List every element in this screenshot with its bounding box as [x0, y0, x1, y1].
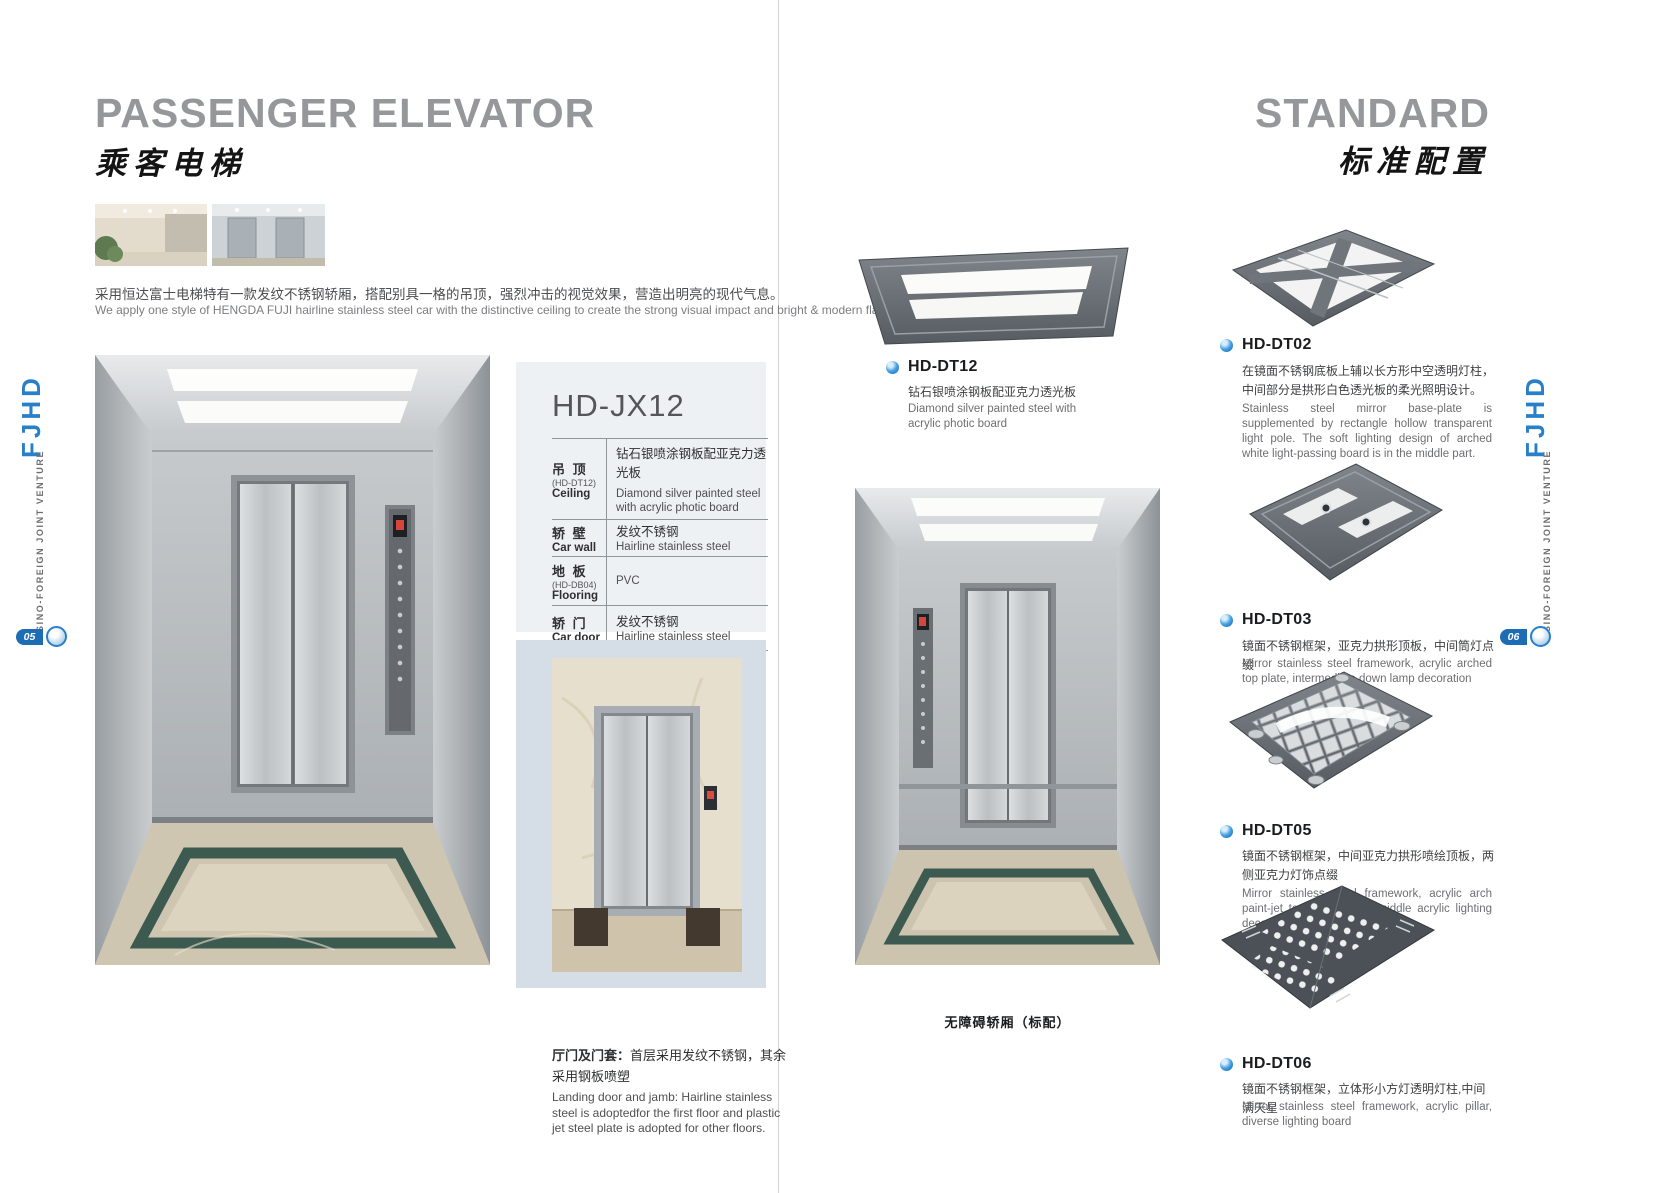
- lobby-photo-1: [95, 204, 207, 266]
- blue-bullet-icon: [1220, 1058, 1233, 1071]
- spec-row-flooring: 地 板 (HD-DB04) Flooring PVC: [552, 557, 768, 606]
- page-title-cn-left: 乘客电梯: [95, 138, 247, 183]
- brand-vertical-left: FJHD: [18, 374, 44, 458]
- item-header: HD-DT06: [1220, 1055, 1312, 1073]
- intro-text-en: We apply one style of HENGDA FUJI hairli…: [95, 303, 898, 317]
- featured-desc-en: Diamond silver painted steel with acryli…: [908, 402, 1093, 432]
- spec-label-cn: 轿 门: [552, 613, 602, 632]
- intro-text-cn: 采用恒达富士电梯特有一款发纹不锈钢轿厢，搭配别具一格的吊顶，强烈冲击的视觉效果，…: [95, 283, 784, 303]
- page-title-cn-right: 标准配置: [1080, 136, 1490, 181]
- page-divider: [778, 0, 779, 1193]
- item-code: HD-DT02: [1242, 336, 1312, 354]
- spec-value-cn: 发纹不锈钢: [616, 611, 768, 630]
- spec-table: 吊 顶 (HD-DT12) Ceiling 钻石银喷涂钢板配亚克力透光板 Dia…: [552, 438, 768, 651]
- item-code: HD-DT03: [1242, 611, 1312, 629]
- page-badge-left: 05: [16, 626, 67, 647]
- landing-note-cn: 厅门及门套：首层采用发纹不锈钢，其余采用钢板喷塑: [552, 1045, 792, 1088]
- item-code: HD-DT05: [1242, 822, 1312, 840]
- lobby-photo-2: [212, 204, 325, 266]
- featured-item-header: HD-DT12: [886, 358, 978, 376]
- spec-label-en: Car wall: [552, 542, 602, 554]
- landing-note-title: 厅门及门套：: [552, 1048, 630, 1063]
- spec-value-en: PVC: [616, 574, 768, 588]
- ceiling-hd-dt06-image: [1212, 868, 1450, 1046]
- page-title-left: PASSENGER ELEVATOR: [95, 90, 595, 137]
- spec-label-en: Flooring: [552, 590, 602, 602]
- item-code: HD-DT06: [1242, 1055, 1312, 1073]
- blue-bullet-icon: [1220, 339, 1233, 352]
- page-title-right: STANDARD: [1080, 90, 1490, 137]
- globe-emblem-icon: [46, 626, 67, 647]
- tagline-vertical-left: SINO-FOREIGN JOINT VENTURE: [36, 450, 45, 632]
- ceiling-hd-dt12-image: [845, 240, 1140, 352]
- blue-bullet-icon: [1220, 614, 1233, 627]
- spec-value-cn: 钻石银喷涂钢板配亚克力透光板: [616, 443, 768, 481]
- landing-note-en: Landing door and jamb: Hairline stainles…: [552, 1090, 795, 1137]
- item-desc-en: Mirror stainless steel framework, acryli…: [1242, 1100, 1492, 1130]
- spec-value-en: Hairline stainless steel: [616, 540, 768, 554]
- page-number-right: 06: [1500, 629, 1527, 645]
- brand-vertical-right: FJHD: [1522, 374, 1548, 458]
- elevator-car-photo: [95, 355, 490, 965]
- item-desc-cn: 在镜面不锈钢底板上辅以长方形中空透明灯柱，中间部分是拱形白色透光板的柔光照明设计…: [1242, 362, 1494, 399]
- spec-label-code: (HD-DT12): [552, 478, 602, 488]
- page-number-left: 05: [16, 629, 43, 645]
- catalog-spread: FJHD SINO-FOREIGN JOINT VENTURE 05 FJHD …: [0, 0, 1678, 1193]
- tagline-vertical-right: SINO-FOREIGN JOINT VENTURE: [1543, 450, 1552, 632]
- featured-item-code: HD-DT12: [908, 358, 978, 376]
- spec-value-en: Diamond silver painted steel with acryli…: [616, 487, 768, 516]
- item-header: HD-DT03: [1220, 611, 1312, 629]
- featured-desc-cn: 钻石银喷涂钢板配亚克力透光板: [908, 383, 1128, 402]
- blue-bullet-icon: [1220, 825, 1233, 838]
- spec-value-cn: 发纹不锈钢: [616, 521, 768, 540]
- item-header: HD-DT02: [1220, 336, 1312, 354]
- model-name: HD-JX12: [552, 388, 685, 424]
- landing-door-photo: [552, 658, 742, 972]
- ceiling-hd-dt05-image: [1216, 652, 1448, 820]
- ceiling-hd-dt02-image: [1218, 222, 1446, 334]
- spec-row-car-wall: 轿 壁 Car wall 发纹不锈钢 Hairline stainless st…: [552, 520, 768, 557]
- accessible-car-photo: [855, 488, 1160, 965]
- spec-label-code: (HD-DB04): [552, 580, 602, 590]
- item-header: HD-DT05: [1220, 822, 1312, 840]
- spec-label-cn: 地 板: [552, 561, 602, 580]
- spec-label-en: Ceiling: [552, 488, 602, 500]
- accessible-car-caption: 无障碍轿厢（标配）: [855, 1012, 1160, 1031]
- spec-label-cn: 吊 顶: [552, 459, 602, 478]
- spec-row-ceiling: 吊 顶 (HD-DT12) Ceiling 钻石银喷涂钢板配亚克力透光板 Dia…: [552, 439, 768, 520]
- ceiling-hd-dt03-image: [1238, 452, 1456, 604]
- globe-emblem-icon: [1530, 626, 1551, 647]
- page-badge-right: 06: [1500, 626, 1551, 647]
- spec-label-cn: 轿 壁: [552, 523, 602, 542]
- blue-bullet-icon: [886, 361, 899, 374]
